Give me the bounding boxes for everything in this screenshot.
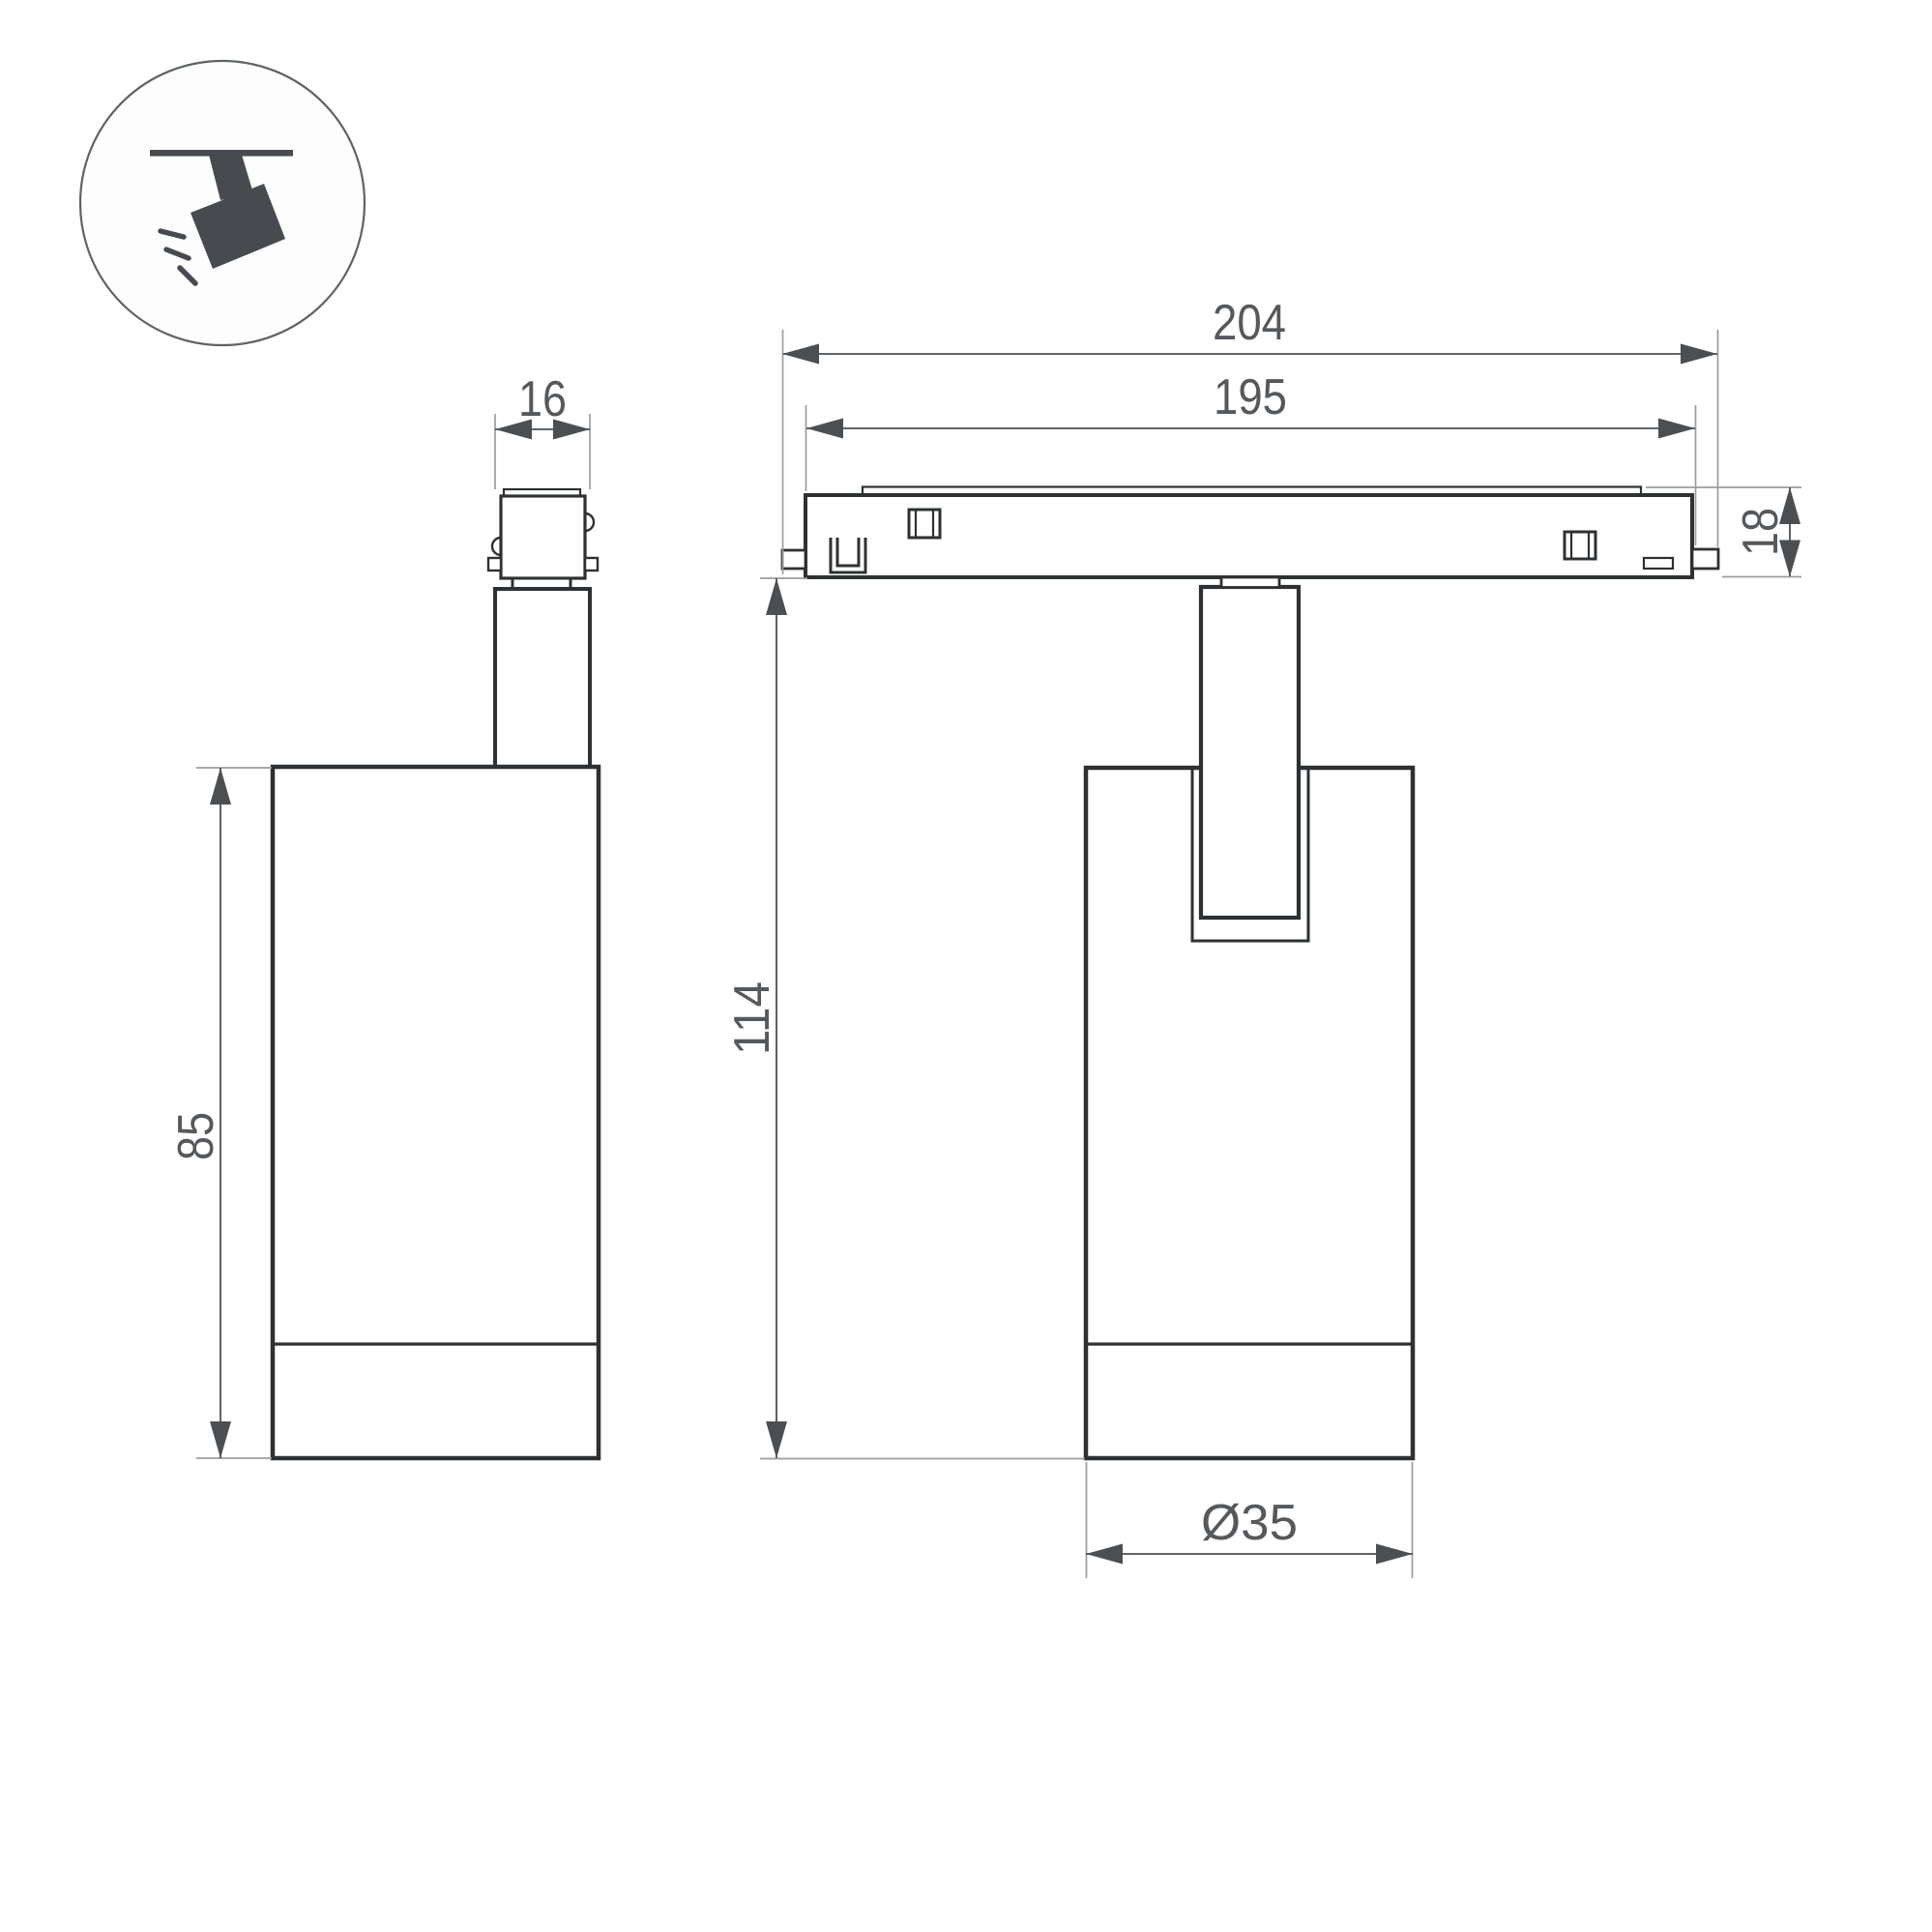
arrowhead-down: [766, 1421, 787, 1458]
dimension-overall-height: 114: [724, 578, 1085, 1459]
side-adapter-right-ear: [585, 558, 598, 571]
track-right-end-tab: [1692, 549, 1718, 569]
front-view: [1086, 577, 1413, 1458]
arrowhead-right: [1658, 419, 1695, 439]
dimension-label: Ø35: [1201, 1495, 1298, 1551]
dimension-label: 114: [724, 981, 780, 1055]
arrowhead-right: [1376, 1544, 1413, 1565]
arrowhead-left: [782, 344, 819, 365]
technical-drawing: 204 195 18 114 85: [0, 0, 1932, 1932]
dimension-adapter-width: 16: [495, 371, 590, 489]
track-profile-view: [782, 487, 1718, 578]
arrowhead-left: [806, 419, 843, 439]
side-adapter-box: [501, 496, 585, 578]
track-left-end-tab: [782, 550, 805, 569]
dimension-label: 204: [1213, 295, 1286, 351]
arrowhead-up: [766, 578, 787, 615]
arrowhead-left: [1086, 1544, 1123, 1565]
side-view: [273, 489, 599, 1458]
dimension-body-diameter: Ø35: [1086, 1462, 1413, 1578]
ceiling-track-spotlight-icon: [80, 61, 365, 345]
dimension-label: 195: [1214, 369, 1287, 425]
arrowhead-right: [1681, 344, 1717, 365]
dimension-body-height: 85: [168, 768, 272, 1458]
arrowhead-down: [210, 1421, 231, 1458]
front-stem: [1201, 587, 1299, 918]
side-adapter-left-ear: [488, 558, 501, 571]
dimension-label: 85: [168, 1112, 224, 1160]
arrowhead-up: [210, 768, 231, 805]
dimension-label: 16: [518, 371, 567, 427]
front-track-nub: [1221, 577, 1279, 588]
side-body: [273, 767, 599, 1458]
side-stem: [495, 589, 590, 767]
dimension-label: 18: [1733, 508, 1789, 556]
drawing-canvas: 204 195 18 114 85: [0, 0, 1932, 1932]
